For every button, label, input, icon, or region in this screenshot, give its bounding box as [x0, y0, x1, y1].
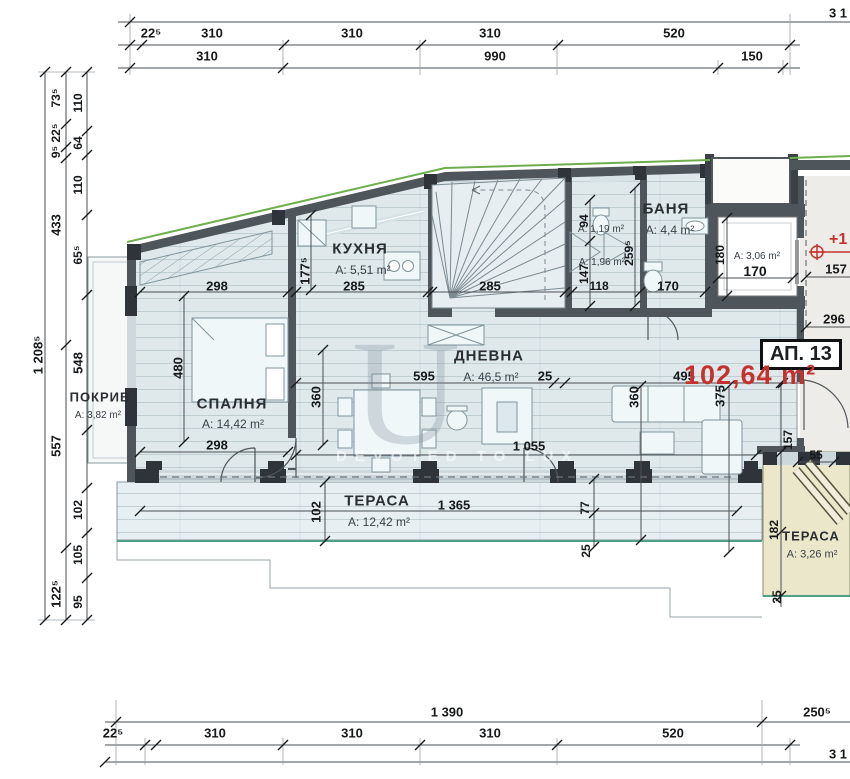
- dimension-label: 122⁵: [50, 580, 63, 608]
- dimension-label: 990: [484, 50, 506, 63]
- level-mark-label: +1: [829, 231, 847, 249]
- dimension-label: 170: [657, 280, 679, 293]
- dimension-label: 118: [589, 280, 608, 292]
- floorplan-page: U DEVOTED TO LUX 3 122⁵31031031052031099…: [0, 0, 850, 779]
- dimension-label: 310: [201, 27, 223, 40]
- room-area-label: A: 3,06 m²: [734, 252, 780, 262]
- dimension-label: 360: [628, 386, 641, 408]
- room-area-label: A: 1,96 m²: [579, 258, 625, 268]
- room-name-label: КУХНЯ: [332, 242, 387, 257]
- dimension-label: 150: [741, 50, 763, 63]
- room-name-label: СПАЛНЯ: [197, 397, 268, 412]
- room-name-label: ДНЕВНА: [454, 349, 524, 364]
- room-area-label: A: 12,42 m²: [348, 516, 410, 528]
- apartment-total-area: 102,64 m²: [684, 360, 816, 391]
- room-name-label: БАНЯ: [643, 202, 690, 217]
- dimension-label: 102: [72, 500, 84, 520]
- dimension-label: 95: [72, 595, 84, 608]
- dimension-label: 22⁵: [141, 27, 162, 40]
- dimension-label: 310: [479, 27, 501, 40]
- room-name-label: ТЕРАСА: [344, 494, 410, 509]
- dimension-label: 3 1: [829, 7, 847, 20]
- dimension-label: 157: [825, 263, 847, 276]
- watermark-letter: U: [352, 318, 460, 468]
- dimension-label: 22⁵: [103, 727, 124, 740]
- dimension-label: 1 365: [438, 499, 471, 512]
- dimension-label: 298: [206, 439, 228, 452]
- dimension-label: 9⁵: [50, 146, 62, 158]
- dimension-label: 296: [823, 313, 845, 326]
- dimension-label: 64: [72, 136, 84, 149]
- dimension-label: 73⁵: [50, 89, 62, 108]
- dimension-label: 77: [579, 501, 591, 514]
- dimension-label: 310: [196, 50, 218, 63]
- room-name-label: ТЕРАСА: [782, 530, 840, 543]
- dimension-label: 25: [580, 544, 592, 557]
- bed: [192, 318, 288, 402]
- dimension-label: 480: [172, 357, 185, 379]
- elevator-shaft: [705, 154, 805, 309]
- dimension-label: 520: [662, 727, 684, 740]
- room-area-label: A: 3,26 m²: [787, 550, 838, 561]
- dimension-label: 250⁵: [803, 706, 831, 719]
- dimension-label: 1 055: [513, 440, 546, 453]
- room-area-label: A: 4,4 m²: [646, 224, 695, 236]
- dimension-label: 110: [72, 93, 84, 112]
- dimension-label: 25: [538, 370, 552, 383]
- dimension-label: 557: [50, 435, 63, 457]
- room-area-label: A: 1,19 m²: [578, 225, 624, 235]
- room-area-label: A: 3,82 m²: [75, 411, 121, 421]
- dimension-label: 548: [72, 352, 85, 374]
- dimension-label: 285: [479, 280, 501, 293]
- dimension-label: 170: [743, 264, 766, 278]
- dimension-label: 310: [204, 727, 226, 740]
- dimension-label: 520: [663, 27, 685, 40]
- dimension-label: 22⁵: [50, 124, 62, 143]
- room-area-label: A: 14,42 m²: [202, 418, 264, 430]
- dimension-label: 65⁵: [72, 246, 84, 265]
- dimension-label: 310: [341, 27, 363, 40]
- dimension-label: 298: [206, 280, 228, 293]
- dimension-label: 3 1: [829, 748, 847, 761]
- dimension-label: 360: [310, 386, 323, 408]
- room-name-label: ПОКРИВ: [70, 391, 131, 404]
- dimension-label: 102: [310, 501, 323, 523]
- dimension-label: 1 208⁵: [32, 336, 45, 375]
- dimension-label: 1 390: [431, 706, 464, 719]
- dimension-label: 55: [809, 449, 822, 461]
- dimension-label: 180: [714, 245, 726, 265]
- dimension-label: 157: [782, 430, 794, 450]
- dimension-label: 310: [479, 727, 501, 740]
- dimension-label: 105: [72, 545, 84, 565]
- dimension-label: 310: [341, 727, 363, 740]
- room-area-label: A: 46,5 m²: [463, 371, 518, 383]
- dimension-label: 595: [413, 370, 435, 383]
- dimension-label: 25: [771, 590, 783, 603]
- dimension-label: 182: [768, 520, 780, 540]
- room-area-label: A: 5,51 m²: [335, 264, 390, 276]
- dimension-label: 285: [343, 280, 365, 293]
- dimension-label: 177⁵: [299, 257, 312, 285]
- dimension-label: 433: [50, 214, 63, 236]
- dimension-label: 110: [72, 175, 84, 194]
